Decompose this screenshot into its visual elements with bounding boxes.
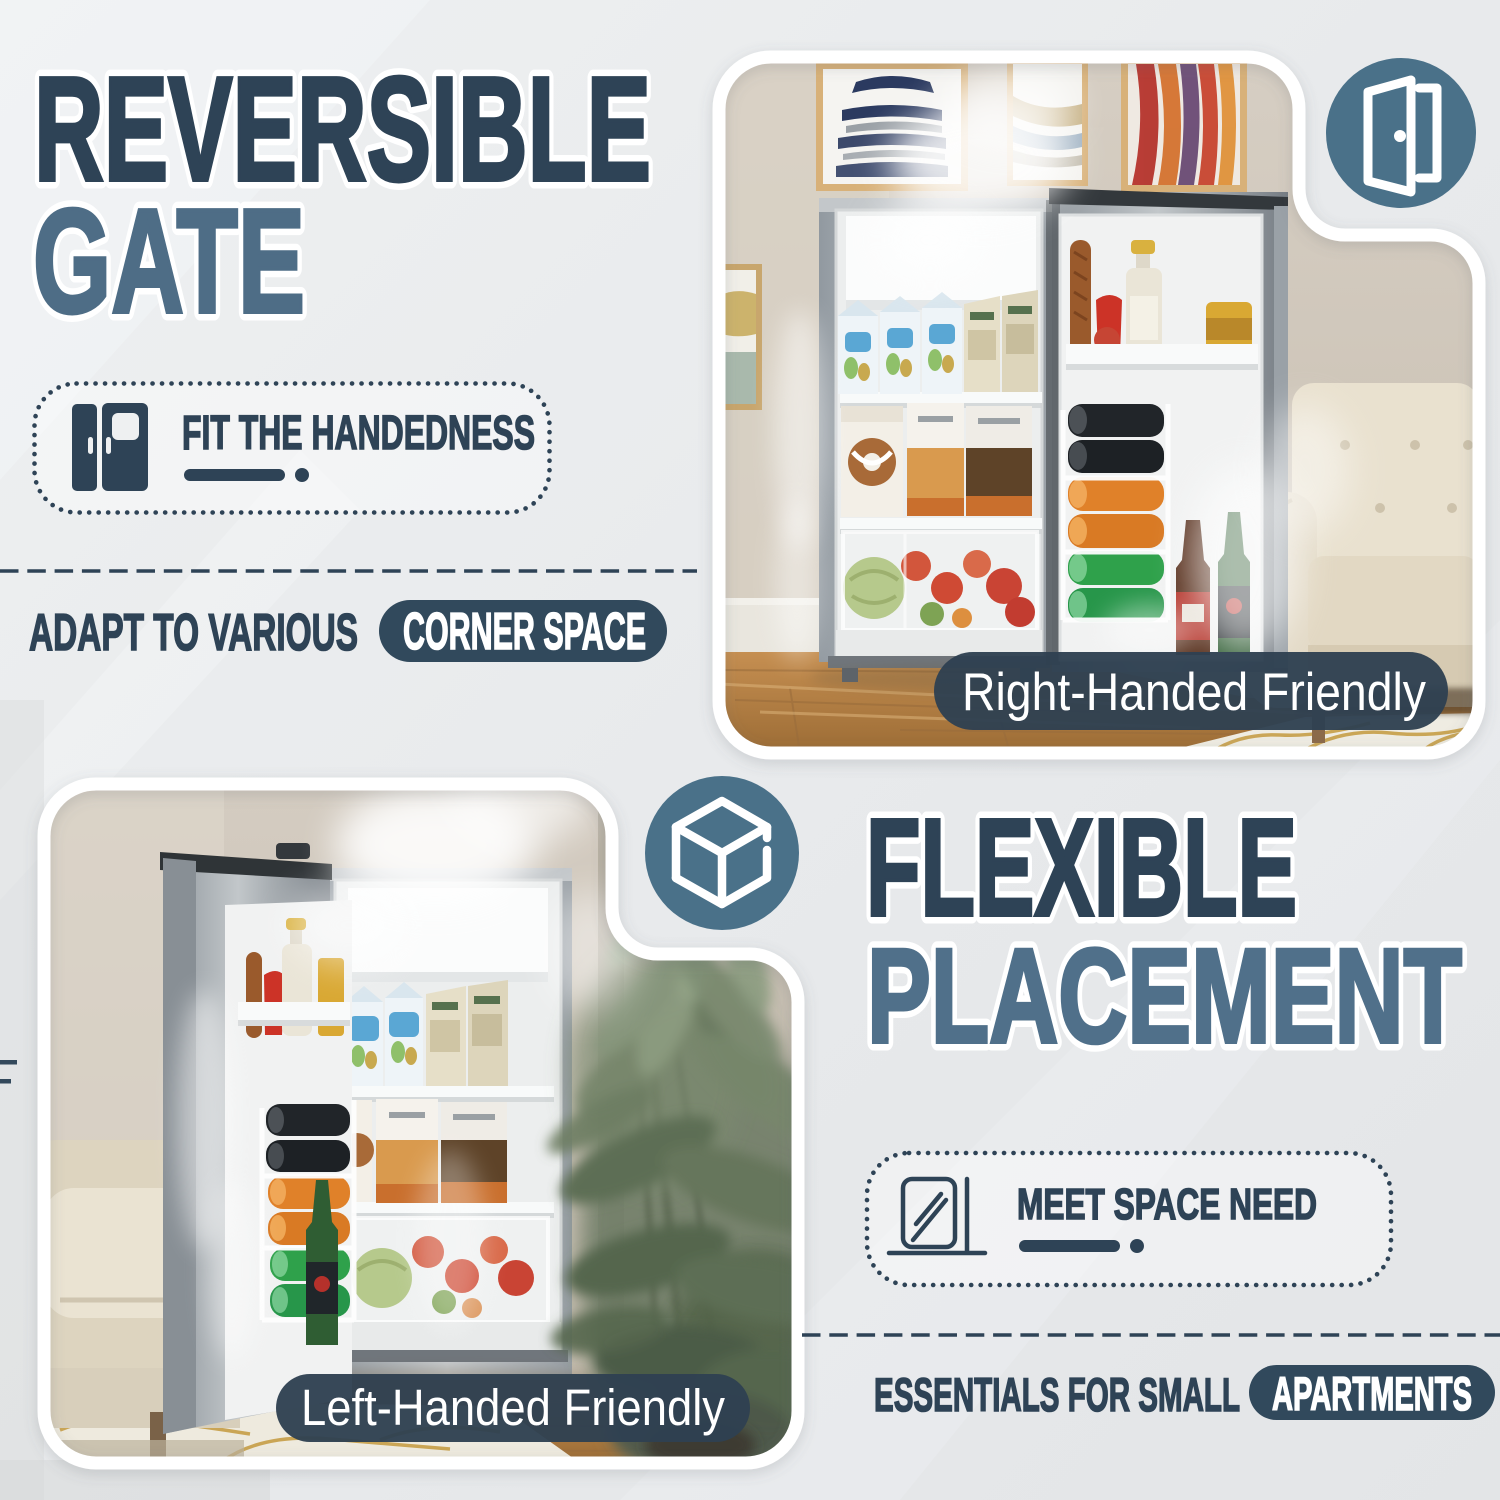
svg-text:Left-Handed Friendly: Left-Handed Friendly (301, 1379, 725, 1436)
svg-text:APARTMENTS: APARTMENTS (1272, 1367, 1472, 1420)
svg-text:ESSENTIALS FOR SMALL: ESSENTIALS FOR SMALL (874, 1368, 1240, 1421)
svg-text:CORNER SPACE: CORNER SPACE (403, 603, 646, 661)
svg-text:PLACEMENT: PLACEMENT (867, 922, 1462, 1071)
svg-text:ADAPT TO VARIOUS: ADAPT TO VARIOUS (29, 604, 358, 662)
svg-text:FIT THE HANDEDNESS: FIT THE HANDEDNESS (182, 407, 535, 460)
svg-text:Right-Handed Friendly: Right-Handed Friendly (962, 663, 1426, 722)
svg-text:GATE: GATE (33, 179, 305, 344)
svg-text:MEET SPACE NEED: MEET SPACE NEED (1017, 1180, 1317, 1229)
